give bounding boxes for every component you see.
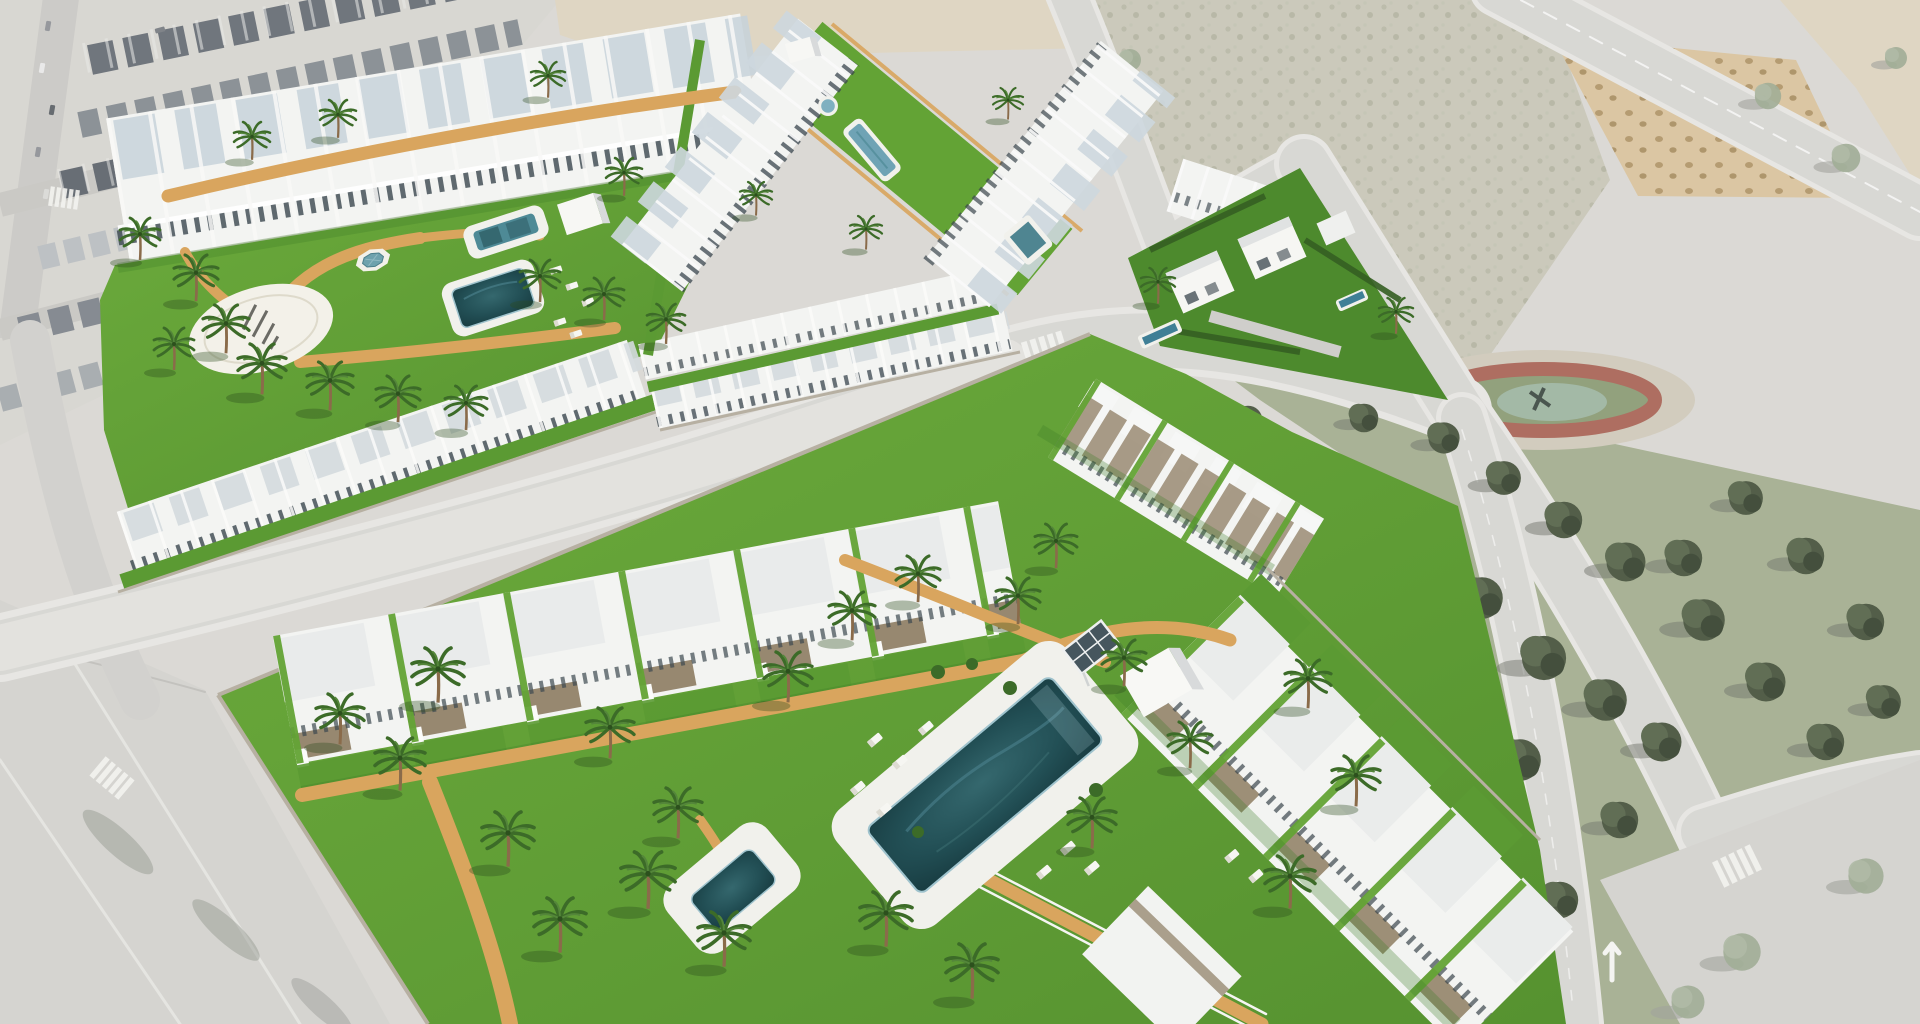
scene-svg bbox=[0, 0, 1920, 1024]
aerial-render-image bbox=[0, 0, 1920, 1024]
